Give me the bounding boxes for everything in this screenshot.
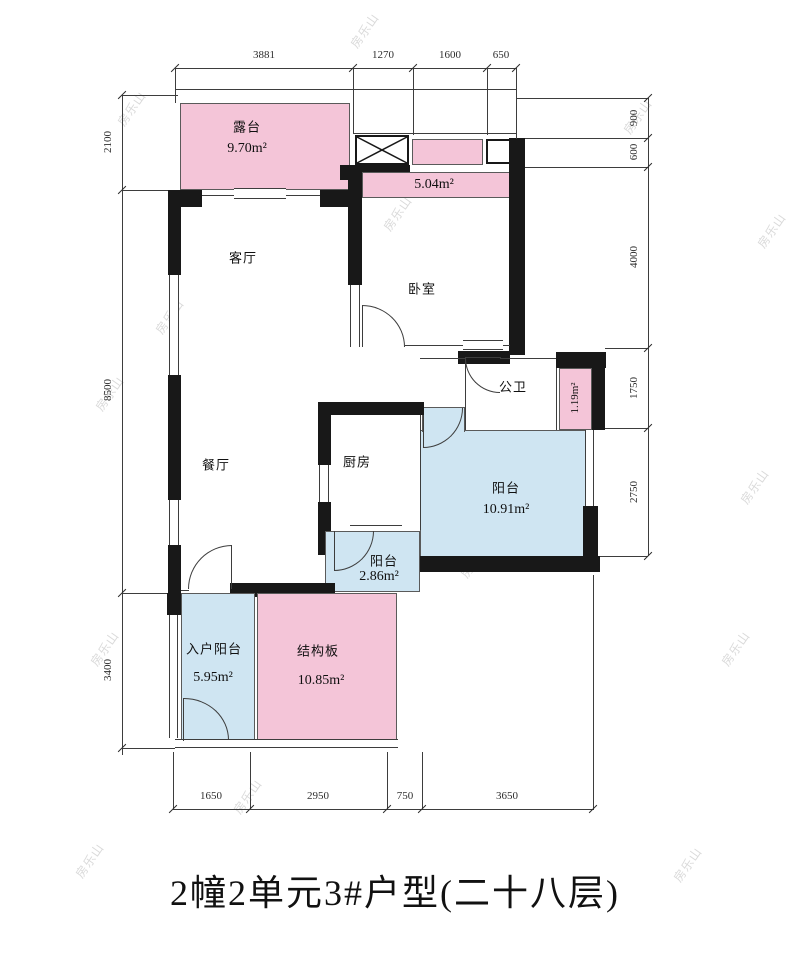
dim-bottom-4: 3650 [496,790,518,802]
balcony-main-area: 10.91m² [483,502,530,518]
entry-balcony-area: 5.95m² [193,670,233,686]
dining-label: 餐厅 [202,455,230,474]
wall-line [181,590,189,591]
kitchen-label: 厨房 [343,452,371,471]
wall-segment [167,593,181,615]
wall-segment [168,375,181,500]
wall-segment [318,415,331,465]
watermark: 房乐山 [717,628,753,670]
window-symbol [169,500,179,545]
window-symbol [319,465,329,502]
extension-line [605,348,648,349]
bath-label: 公卫 [499,377,527,396]
extension-line [516,68,517,139]
wall-segment [168,190,181,275]
slab-room [257,593,397,740]
slab-area: 10.85m² [298,673,345,689]
extension-line [122,190,168,191]
extension-line [525,138,648,139]
dining-door-leaf [231,545,232,589]
floor-plan-canvas: 房乐山 房乐山 房乐山 房乐山 房乐山 房乐山 房乐山 房乐山 房乐山 房乐山 … [0,0,800,953]
plan-title: 2幢2单元3#户型(二十八层) [0,864,790,916]
extension-line [353,68,354,133]
extension-line [487,68,488,135]
extension-line [593,575,594,809]
balcony-small-area: 2.86m² [359,569,399,585]
dim-left-1: 2100 [102,131,114,153]
extension-line [605,428,648,429]
bottom-wall-line [175,739,398,748]
watermark: 房乐山 [346,10,382,52]
wall-segment [509,138,525,355]
balcony-main-label: 阳台 [492,478,520,497]
bath-door-arc [465,358,500,393]
watermark: 房乐山 [379,193,415,235]
entry-balcony-label: 入户阳台 [186,639,242,658]
window-symbol [169,275,179,375]
bedroom-label: 卧室 [408,279,436,298]
wall-segment [348,168,362,285]
dim-left-2: 8500 [102,379,114,401]
dim-bottom-2: 2950 [307,790,329,802]
dim-right-4: 1750 [628,377,640,399]
window-symbol [463,340,503,350]
dining-door-arc [188,545,232,589]
kitchen-door-leaf [334,531,335,571]
wall-segment [592,360,605,430]
extension-line [422,752,423,809]
extension-line [525,167,648,168]
duct-area: 1.19m² [569,382,581,413]
terrace-label: 露台 [233,117,261,136]
bath-wall-line [500,358,556,359]
wall-segment [415,556,600,572]
bath-wall-line [465,358,466,430]
dim-right-5: 2750 [628,481,640,503]
dim-bottom-1: 1650 [200,790,222,802]
extension-line [517,98,648,99]
wall-segment [318,402,424,415]
watermark: 房乐山 [113,88,149,130]
terrace-area: 9.70m² [227,141,267,157]
shaft-top-line [353,133,516,134]
extension-line [600,556,648,557]
extension-line [173,752,174,809]
bedroom-door-arc [362,305,405,347]
window-symbol [585,430,594,506]
dim-left-3: 3400 [102,659,114,681]
slab-label: 结构板 [297,641,339,660]
extension-line [122,95,178,96]
extension-line [122,748,175,749]
living-label: 客厅 [229,248,257,267]
dim-line-top [175,68,517,69]
kitchen-wall-line [420,415,421,530]
dim-right-1: 900 [628,110,640,127]
terrace-window-symbol [234,188,286,199]
dim-top-2: 1270 [372,49,394,61]
shaft-cross-icon [355,135,409,165]
dim-line-left [122,95,123,755]
window-symbol [169,615,178,738]
dim-top-4: 650 [493,49,510,61]
dim-top-1: 3881 [253,49,275,61]
extension-line [250,752,251,809]
bath-door-leaf [465,357,501,358]
bath-wall-line [420,358,465,359]
watermark: 房乐山 [736,466,772,508]
extension-line [413,68,414,135]
roof-line [175,89,516,90]
extension-line [387,752,388,809]
bedroom-door-leaf [362,305,363,347]
extension-line [175,68,176,103]
shaft-flowerbed [412,139,483,165]
strip-504-area: 5.04m² [414,177,454,193]
dim-bottom-3: 750 [397,790,414,802]
dim-top-3: 1600 [439,49,461,61]
bath-wall-line [556,368,557,430]
entry-door-leaf [183,698,184,741]
extension-line [122,593,167,594]
balcony-small-label: 阳台 [370,551,398,570]
window-symbol [350,285,360,347]
dim-right-2: 600 [628,144,640,161]
watermark: 房乐山 [753,210,789,252]
dim-right-3: 4000 [628,246,640,268]
wall-segment [168,545,181,597]
